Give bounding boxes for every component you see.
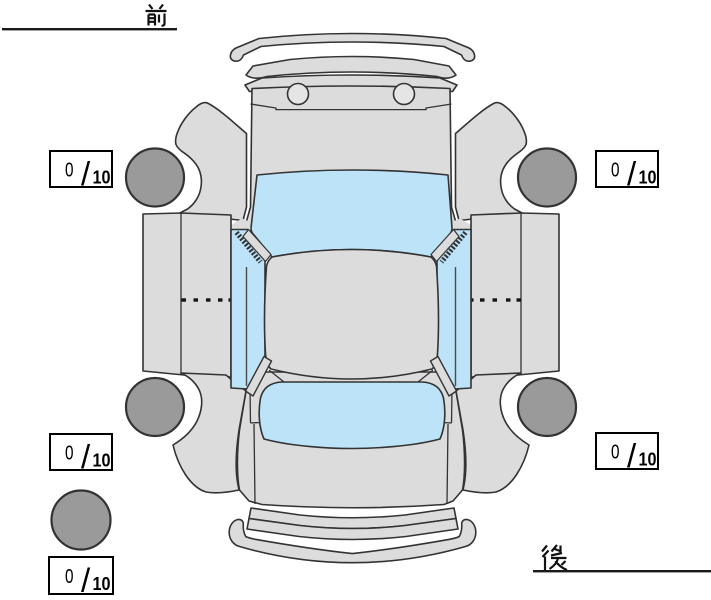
svg-text:10: 10 [93, 573, 111, 594]
svg-text:0: 0 [611, 159, 620, 182]
svg-text:0: 0 [611, 441, 620, 464]
svg-text:0: 0 [65, 565, 74, 588]
svg-text:/: / [627, 155, 637, 192]
svg-text:10: 10 [93, 450, 111, 471]
svg-text:/: / [81, 562, 91, 599]
svg-text:/: / [627, 437, 637, 474]
svg-text:10: 10 [93, 167, 111, 188]
svg-text:0: 0 [65, 159, 74, 182]
svg-text:0: 0 [65, 442, 74, 465]
svg-text:/: / [81, 155, 91, 192]
svg-text:10: 10 [639, 449, 657, 470]
svg-text:/: / [81, 438, 91, 475]
svg-text:10: 10 [639, 167, 657, 188]
